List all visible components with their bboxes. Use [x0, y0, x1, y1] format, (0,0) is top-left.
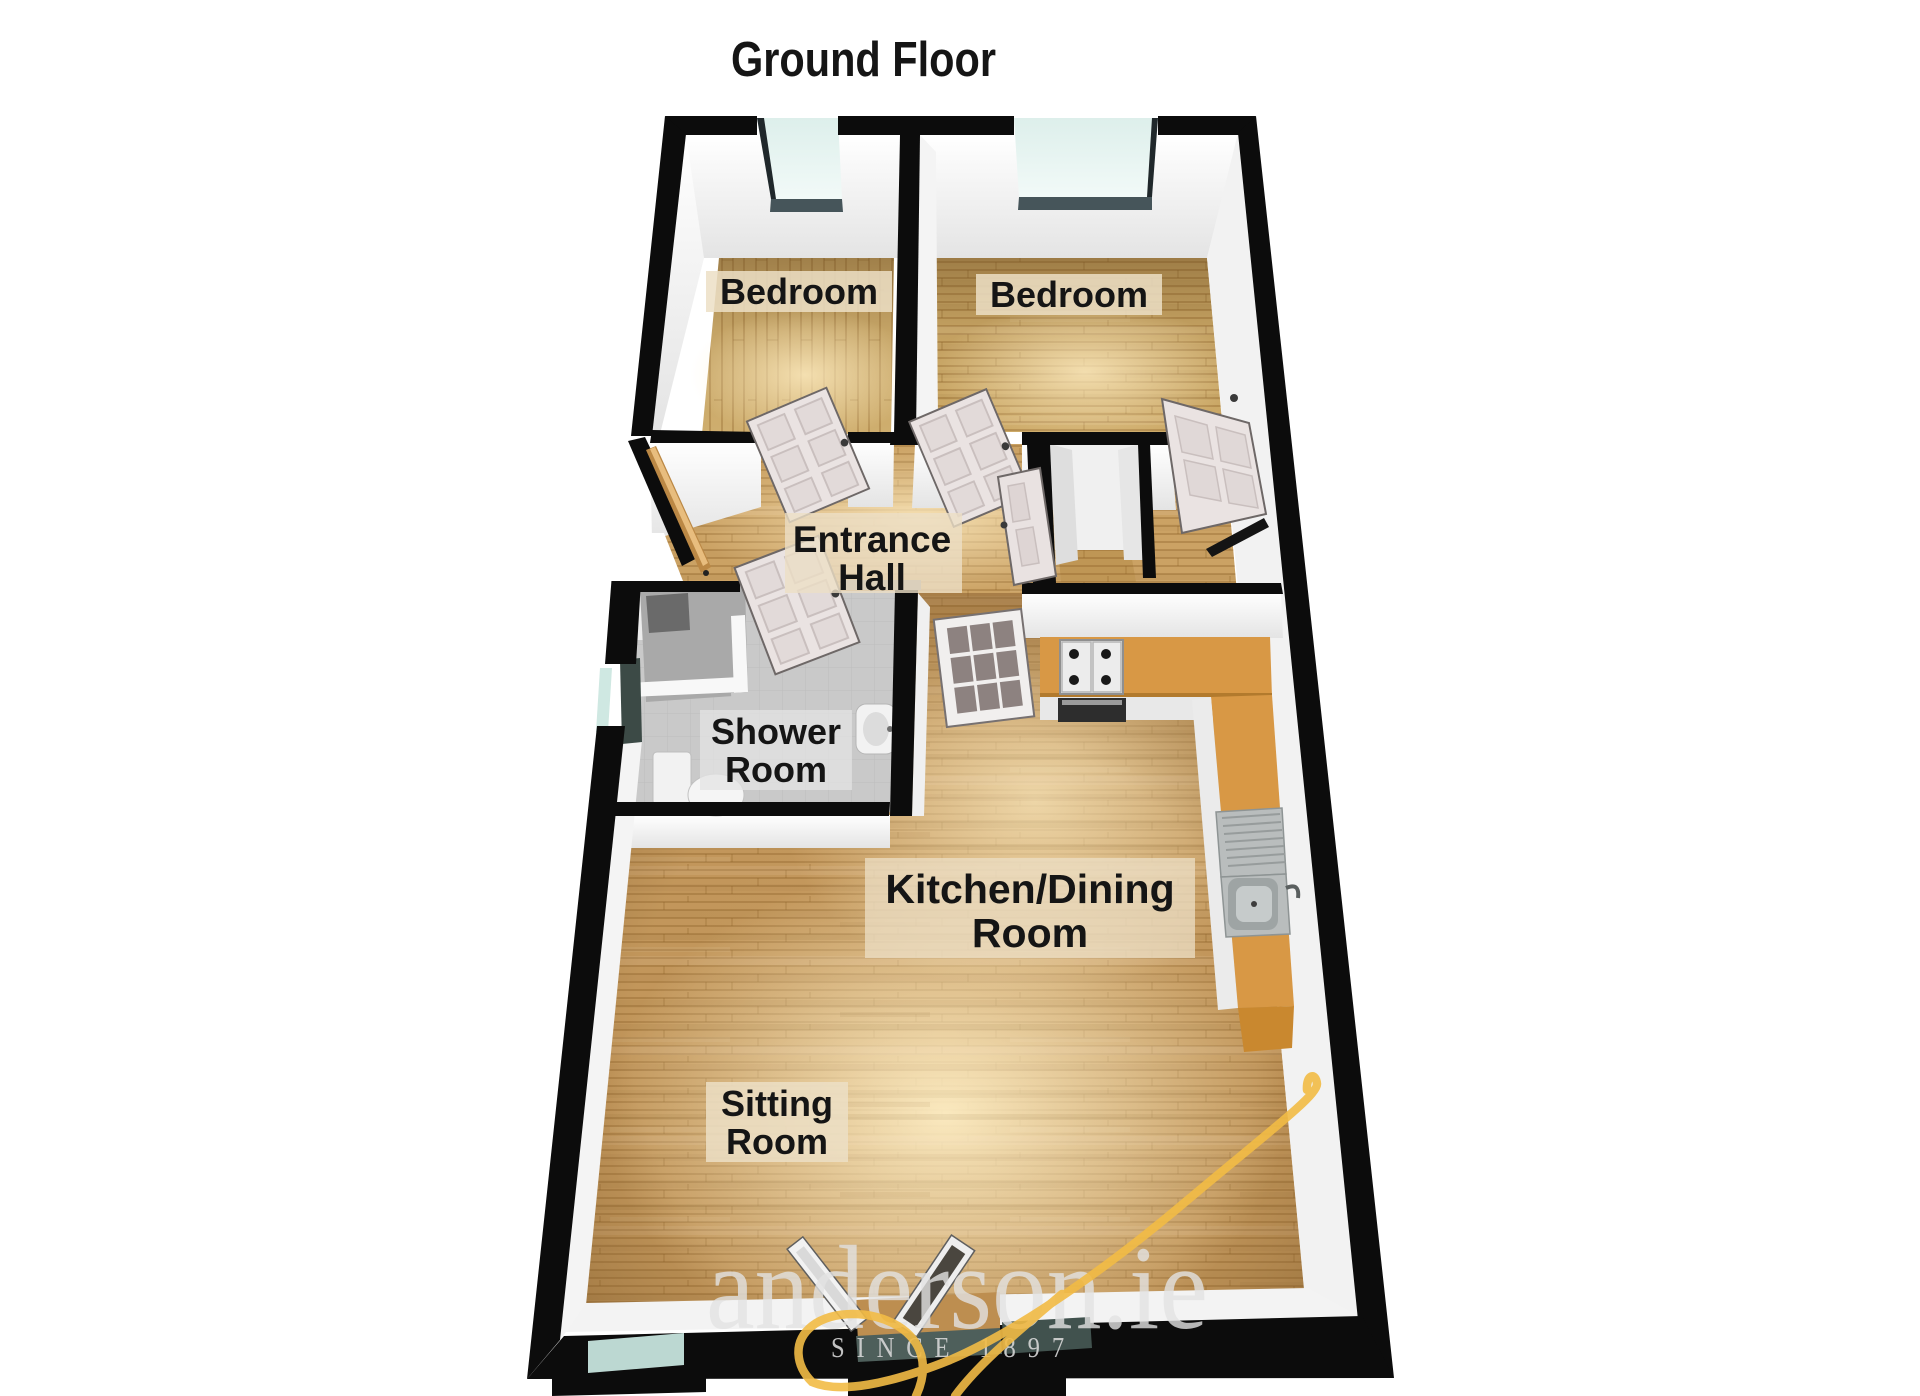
svg-text:Sitting: Sitting — [721, 1083, 833, 1124]
svg-text:Shower: Shower — [711, 711, 841, 752]
svg-text:Bedroom: Bedroom — [720, 271, 878, 312]
svg-text:Hall: Hall — [838, 557, 906, 598]
svg-text:Bedroom: Bedroom — [990, 274, 1148, 315]
svg-text:Entrance: Entrance — [793, 519, 951, 560]
svg-text:Room: Room — [725, 749, 827, 790]
svg-text:Room: Room — [726, 1121, 828, 1162]
svg-text:Ground Floor: Ground Floor — [731, 33, 996, 87]
svg-text:Room: Room — [972, 910, 1088, 956]
svg-text:Kitchen/Dining: Kitchen/Dining — [885, 866, 1174, 912]
